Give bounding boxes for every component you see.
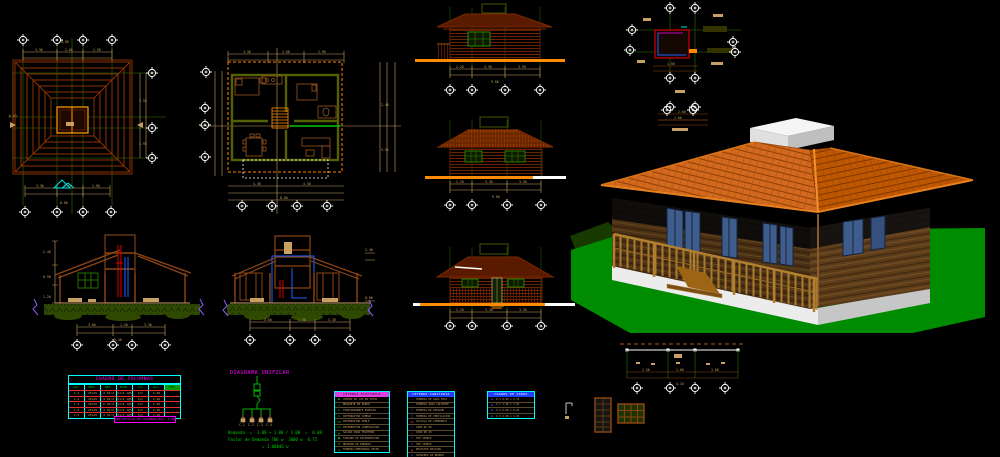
dimension-labels: 3.60 1.50 3.30 bbox=[264, 318, 336, 322]
circuit-symbols bbox=[241, 415, 272, 422]
symbol: ▮ bbox=[488, 397, 496, 401]
window bbox=[468, 32, 490, 46]
terrace-outline bbox=[243, 160, 328, 178]
dimension-chains bbox=[200, 48, 401, 214]
chimney-outline bbox=[480, 117, 508, 127]
stair-cut-red bbox=[280, 280, 283, 298]
symbol: ∥ bbox=[408, 414, 416, 418]
symbol: ▮ bbox=[488, 414, 496, 418]
symbol: ■ bbox=[335, 436, 343, 440]
svg-text:3.55: 3.55 bbox=[139, 99, 147, 103]
svg-text:4.30: 4.30 bbox=[253, 182, 261, 186]
svg-text:1.20: 1.20 bbox=[43, 295, 51, 299]
symbol: S2 bbox=[335, 420, 343, 424]
attic-figure bbox=[284, 242, 292, 254]
legend-row: ◎SUMIDERO DE BRONCE bbox=[408, 453, 454, 457]
columns-table-header: COL. SECC. REF. ESTR. S/C ALT. OBS. bbox=[69, 384, 180, 390]
axis-line bbox=[626, 349, 740, 352]
roof bbox=[601, 142, 973, 212]
svg-text:3.50: 3.50 bbox=[519, 180, 527, 184]
table-row: C-330x306 O1/2O1/4 1@5S/C2.40- bbox=[69, 401, 180, 407]
svg-text:1.50: 1.50 bbox=[667, 62, 675, 66]
table-row: ▮V-3 2.40 x 1.00 bbox=[488, 414, 534, 419]
symbol: ⊗ bbox=[335, 448, 343, 452]
section-a[interactable]: 2.40 0.90 1.20 3.60 1.50 3.30 8.40 bbox=[28, 223, 213, 353]
svg-text:2.60: 2.60 bbox=[282, 50, 290, 54]
svg-text:2.20: 2.20 bbox=[456, 65, 464, 69]
svg-text:C-4: C-4 bbox=[266, 423, 272, 427]
svg-text:3.60: 3.60 bbox=[264, 318, 272, 322]
level-marker-detail bbox=[562, 400, 576, 422]
ground-line bbox=[415, 59, 565, 62]
svg-text:9.00: 9.00 bbox=[491, 80, 499, 84]
svg-text:C-3: C-3 bbox=[257, 423, 263, 427]
symbol: ▲ bbox=[335, 431, 343, 435]
ground-line bbox=[425, 176, 533, 179]
legend-row: ⊗TUBERIA EMPOTRADA TECHO bbox=[335, 447, 389, 452]
skylight bbox=[57, 107, 88, 133]
dimension-labels: 2.20 3.30 3.50 9.00 bbox=[456, 180, 527, 199]
svg-text:0.00: 0.00 bbox=[365, 296, 373, 300]
roof-plan[interactable]: 3.30 2.60 2.90 8.80 3.30 2.60 2.90 8.80 … bbox=[8, 30, 170, 222]
calc-line-3: = 1.08846 w bbox=[228, 444, 289, 449]
legend-sanitary-title: LEYENDA SANITARIA bbox=[408, 392, 454, 397]
svg-text:2.20: 2.20 bbox=[456, 308, 464, 312]
symbol: S bbox=[335, 414, 343, 418]
feeder-and-breakers bbox=[243, 376, 271, 415]
svg-text:3.30: 3.30 bbox=[36, 184, 44, 188]
svg-text:2.90: 2.90 bbox=[318, 50, 326, 54]
detail-square bbox=[655, 27, 697, 58]
dimension-labels: 2.20 3.30 3.50 9.00 bbox=[456, 65, 526, 84]
svg-text:1.50: 1.50 bbox=[642, 368, 650, 372]
render-3d[interactable]: 2.60 bbox=[568, 98, 1000, 350]
symbol: = bbox=[408, 408, 416, 412]
door bbox=[492, 278, 502, 303]
table-row: C-425x254 O1/2O1/4 1@5S/C2.40- bbox=[69, 407, 180, 413]
roof-structure bbox=[55, 235, 191, 303]
svg-text:3.30: 3.30 bbox=[485, 180, 493, 184]
dimension-labels: 1.50 1.00 1.60 4.10 bbox=[642, 368, 719, 386]
dimension-chains bbox=[52, 241, 165, 336]
roof-structure bbox=[232, 236, 362, 288]
ground-hatch bbox=[44, 304, 200, 321]
foundation-dim-strip[interactable]: 1.50 1.00 1.60 4.10 bbox=[616, 332, 768, 394]
floor-plan[interactable]: 3.30 2.60 2.90 4.30 4.50 8.80 2.40 3.55 bbox=[198, 46, 403, 218]
svg-text:1.60: 1.60 bbox=[711, 368, 719, 372]
single-line-diagram[interactable]: DIAGRAMA UNIFILAR C-1 C-2 C-3 C-4 bbox=[228, 365, 310, 427]
svg-text:8.80: 8.80 bbox=[61, 40, 69, 44]
svg-text:8.80: 8.80 bbox=[60, 201, 68, 205]
calc-line-1: Demanda = 1.08 + 1.08 / 1.08 = 0.08 bbox=[228, 430, 322, 435]
log-wall bbox=[450, 149, 542, 177]
chimney-outline bbox=[482, 4, 506, 13]
section-b[interactable]: 2.40 0.00 3.60 1.50 3.30 bbox=[222, 228, 377, 352]
svg-text:2.20: 2.20 bbox=[456, 180, 464, 184]
svg-text:8.40: 8.40 bbox=[114, 338, 122, 342]
log-wall bbox=[450, 30, 540, 60]
legend-sanitary[interactable]: LEYENDA SANITARIA —TUBERIA DE AGUA FRIA … bbox=[407, 391, 455, 457]
elevation-front[interactable]: 2.20 3.30 3.50 bbox=[413, 226, 575, 330]
symbol: — bbox=[408, 403, 416, 407]
symbol: ● bbox=[335, 397, 343, 401]
mini-dim-detail: 2.60 bbox=[658, 104, 708, 131]
ground-line bbox=[420, 303, 545, 306]
chimney-outline bbox=[480, 244, 508, 254]
svg-text:3.30: 3.30 bbox=[144, 323, 152, 327]
ground-line-white-l bbox=[413, 303, 420, 306]
svg-text:8.80: 8.80 bbox=[280, 196, 288, 200]
dimension-chains bbox=[627, 372, 738, 378]
svg-text:C-2: C-2 bbox=[248, 423, 254, 427]
svg-text:2.90: 2.90 bbox=[92, 184, 100, 188]
roof bbox=[437, 257, 553, 277]
svg-text:3.30: 3.30 bbox=[328, 318, 336, 322]
svg-text:3.30: 3.30 bbox=[243, 50, 251, 54]
elevation-rear[interactable]: 2.20 3.30 3.50 9.00 bbox=[413, 2, 568, 100]
svg-text:2.60: 2.60 bbox=[65, 48, 73, 52]
svg-text:2.40: 2.40 bbox=[381, 103, 389, 107]
svg-text:1.50: 1.50 bbox=[298, 318, 306, 322]
cad-model-space[interactable]: 3.30 2.60 2.90 8.80 3.30 2.60 2.90 8.80 … bbox=[0, 0, 1000, 457]
railing bbox=[437, 44, 450, 60]
table-row: C-225x254 O1/2O1/4 1@5S/C2.40- bbox=[69, 396, 180, 402]
right-level-tags: 2.40 0.00 bbox=[365, 248, 375, 301]
door-detail bbox=[594, 397, 612, 433]
symbol: ◎ bbox=[408, 453, 416, 457]
svg-text:0.90: 0.90 bbox=[43, 275, 51, 279]
circuit-labels: C-1 C-2 C-3 C-4 bbox=[239, 423, 272, 427]
svg-text:3.50: 3.50 bbox=[518, 65, 526, 69]
svg-text:9.00: 9.00 bbox=[492, 195, 500, 199]
svg-text:4.10: 4.10 bbox=[676, 382, 684, 386]
symbol: — bbox=[408, 397, 416, 401]
grid-bubbles bbox=[444, 320, 547, 330]
grid-bubbles bbox=[244, 334, 356, 346]
legend-electrical[interactable]: LEYENDA ELECTRICA ●CENTRO DE LUZ EN TECH… bbox=[334, 391, 390, 453]
window-detail bbox=[617, 403, 645, 424]
svg-text:2.60: 2.60 bbox=[674, 116, 682, 120]
symbol: Y bbox=[408, 442, 416, 446]
svg-text:2.95: 2.95 bbox=[139, 142, 147, 146]
columns-table-title: CUADRO DE COLUMNAS bbox=[69, 376, 180, 384]
annotation-smudges bbox=[636, 354, 725, 365]
symbol: ▮ bbox=[488, 403, 496, 407]
floor-elements bbox=[68, 298, 159, 302]
calc-notes: Demanda = 1.08 + 1.08 / 1.08 = 0.08Facto… bbox=[228, 429, 322, 450]
symbol: ⋈ bbox=[408, 420, 416, 424]
grid-bubbles bbox=[444, 84, 546, 96]
symbol: M bbox=[335, 442, 343, 446]
diagram-title: DIAGRAMA UNIFILAR bbox=[230, 370, 290, 376]
calc-line-2: Factor de Demanda 700 w 3000 w 0.75 bbox=[228, 437, 317, 442]
roof bbox=[437, 14, 552, 27]
openings-table[interactable]: CUADRO DE VANOS ▮P-1 0.90 x 2.10 ▮V-1 1.… bbox=[487, 391, 535, 419]
symbol: ◉ bbox=[408, 448, 416, 452]
svg-text:3.55: 3.55 bbox=[381, 148, 389, 152]
roof bbox=[438, 130, 553, 147]
openings-table-title: CUADRO DE VANOS bbox=[488, 392, 534, 397]
grid-bubbles bbox=[199, 66, 333, 212]
columns-table-note: VER DETALLE DE COLUMNAS ESC. 1/25 bbox=[114, 416, 176, 423]
floor-elements bbox=[250, 298, 338, 302]
symbol: ○ bbox=[335, 403, 343, 407]
dimension-labels: 2.20 3.30 3.50 bbox=[456, 308, 527, 312]
grid-bubbles bbox=[444, 199, 547, 211]
svg-text:2.40: 2.40 bbox=[365, 248, 373, 252]
columns-table[interactable]: CUADRO DE COLUMNAS COL. SECC. REF. ESTR.… bbox=[68, 375, 181, 419]
svg-text:3.50: 3.50 bbox=[519, 308, 527, 312]
svg-text:1.00: 1.00 bbox=[676, 368, 684, 372]
svg-text:3.60: 3.60 bbox=[88, 323, 96, 327]
stairs bbox=[272, 108, 288, 128]
stair-cut-blue bbox=[125, 257, 128, 297]
symbol: S3 bbox=[335, 425, 343, 429]
symbol: ∠ bbox=[408, 431, 416, 435]
svg-text:3.30: 3.30 bbox=[484, 65, 492, 69]
elevation-side[interactable]: 2.20 3.30 3.50 9.00 bbox=[413, 103, 568, 213]
svg-text:3.30: 3.30 bbox=[485, 308, 493, 312]
symbol: ⊕ bbox=[335, 408, 343, 412]
svg-text:2.40: 2.40 bbox=[43, 250, 51, 254]
window-cut bbox=[78, 273, 98, 288]
svg-text:C-1: C-1 bbox=[239, 423, 245, 427]
svg-text:3.30: 3.30 bbox=[35, 48, 43, 52]
symbol: ⊤ bbox=[408, 436, 416, 440]
svg-text:4.50: 4.50 bbox=[303, 182, 311, 186]
dimension-labels: 3.30 2.60 2.90 4.30 4.50 8.80 2.40 3.55 bbox=[243, 50, 389, 200]
ground-line-white bbox=[533, 176, 566, 179]
svg-text:1.50: 1.50 bbox=[120, 323, 128, 327]
symbol: ∟ bbox=[408, 425, 416, 429]
stair-cut-blue bbox=[272, 256, 314, 303]
svg-text:2.90: 2.90 bbox=[93, 48, 101, 52]
table-row: C-125x254 O1/2O1/4 1@5S/C2.40- bbox=[69, 390, 180, 396]
symbol: ▮ bbox=[488, 408, 496, 412]
